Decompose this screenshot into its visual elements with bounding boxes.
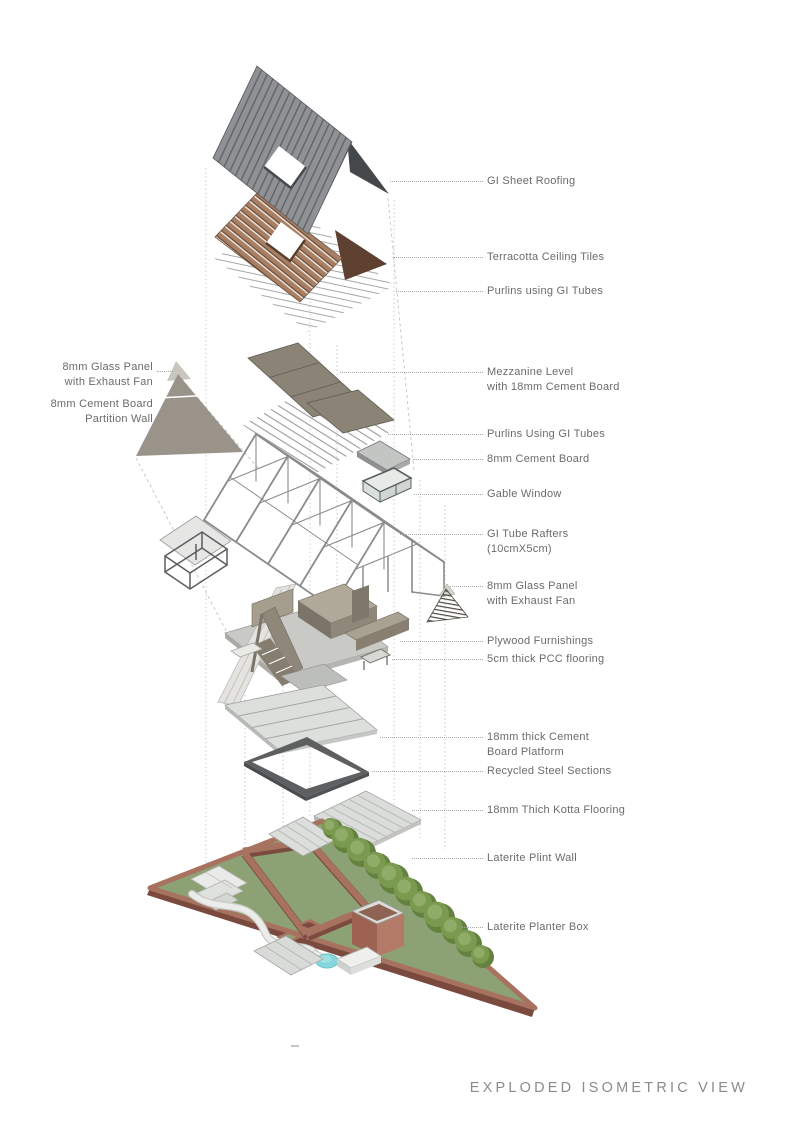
layer-glass-panel-right: [427, 584, 468, 622]
callout-glass-panel-exhaust-fan-right: 8mm Glass Panelwith Exhaust Fan: [487, 579, 578, 608]
callout-glass-panel-exhaust-fan-right-line: with Exhaust Fan: [487, 594, 578, 609]
leader-line-mezzanine-level: [340, 372, 483, 373]
callout-pcc-flooring: 5cm thick PCC flooring: [487, 652, 604, 667]
callout-laterite-plint-wall: Laterite Plint Wall: [487, 851, 577, 866]
callout-cement-board-partition-wall-line: Partition Wall: [35, 412, 153, 427]
callout-mezzanine-level-line: Mezzanine Level: [487, 365, 620, 380]
leader-line-cement-board-8mm: [413, 459, 483, 460]
callout-gi-sheet-roofing: GI Sheet Roofing: [487, 174, 575, 189]
callout-glass-panel-exhaust-fan-right-line: 8mm Glass Panel: [487, 579, 578, 594]
callout-cement-board-8mm: 8mm Cement Board: [487, 452, 589, 467]
leader-line-laterite-plint-wall: [412, 858, 483, 859]
callout-terracotta-ceiling-tiles: Terracotta Ceiling Tiles: [487, 250, 604, 265]
callout-cement-board-8mm-line: 8mm Cement Board: [487, 452, 589, 467]
callout-cement-board-platform-line: 18mm thick Cement: [487, 730, 589, 745]
callout-cement-board-partition-wall-line: 8mm Cement Board: [35, 397, 153, 412]
callout-kotta-flooring-line: 18mm Thich Kotta Flooring: [487, 803, 625, 818]
callout-cement-board-partition-wall: 8mm Cement BoardPartition Wall: [35, 397, 153, 426]
callout-cement-board-platform: 18mm thick CementBoard Platform: [487, 730, 589, 759]
callout-glass-panel-exhaust-fan-left-line: 8mm Glass Panel: [35, 360, 153, 375]
callout-gi-tube-rafters: GI Tube Rafters(10cmX5cm): [487, 527, 568, 556]
leader-line-gi-tube-rafters: [400, 534, 483, 535]
leader-line-pcc-flooring: [392, 659, 483, 660]
exploded-isometric-diagram: [0, 0, 800, 1131]
callout-purlins-using-gi-tubes-upper: Purlins using GI Tubes: [487, 284, 603, 299]
callout-purlins-using-gi-tubes-lower-line: Purlins Using GI Tubes: [487, 427, 605, 442]
callout-recycled-steel-sections: Recycled Steel Sections: [487, 764, 611, 779]
leader-line-gi-sheet-roofing: [390, 181, 483, 182]
callout-gi-tube-rafters-line: GI Tube Rafters: [487, 527, 568, 542]
callout-purlins-using-gi-tubes-upper-line: Purlins using GI Tubes: [487, 284, 603, 299]
callout-mezzanine-level: Mezzanine Levelwith 18mm Cement Board: [487, 365, 620, 394]
layer-8mm-cement-board: [357, 441, 410, 475]
layer-gi-sheet-roofing: [213, 66, 389, 234]
callout-laterite-plint-wall-line: Laterite Plint Wall: [487, 851, 577, 866]
callout-mezzanine-level-line: with 18mm Cement Board: [487, 380, 620, 395]
leader-line-terracotta-ceiling-tiles: [393, 257, 483, 258]
leader-line-kotta-flooring: [412, 810, 483, 811]
callout-gable-window-line: Gable Window: [487, 487, 562, 502]
callout-cement-board-platform-line: Board Platform: [487, 745, 589, 760]
callout-plywood-furnishings: Plywood Furnishings: [487, 634, 593, 649]
layer-gable-window-left: [160, 516, 231, 589]
leader-line-laterite-planter-box: [462, 927, 483, 928]
leader-line-gable-window: [414, 494, 483, 495]
callout-laterite-planter-box: Laterite Planter Box: [487, 920, 589, 935]
callout-terracotta-ceiling-tiles-line: Terracotta Ceiling Tiles: [487, 250, 604, 265]
leader-line-plywood-furnishings: [400, 641, 483, 642]
page: GI Sheet RoofingTerracotta Ceiling Tiles…: [0, 0, 800, 1131]
callout-purlins-using-gi-tubes-lower: Purlins Using GI Tubes: [487, 427, 605, 442]
leader-line-glass-panel-exhaust-fan-right: [450, 586, 483, 587]
callout-glass-panel-exhaust-fan-left: 8mm Glass Panelwith Exhaust Fan: [35, 360, 153, 389]
leader-line-purlins-using-gi-tubes-upper: [396, 291, 483, 292]
callout-laterite-planter-box-line: Laterite Planter Box: [487, 920, 589, 935]
callout-kotta-flooring: 18mm Thich Kotta Flooring: [487, 803, 625, 818]
layer-gable-window-right: [363, 468, 411, 502]
leader-line-glass-panel-exhaust-fan-left: [157, 371, 173, 372]
callout-gi-sheet-roofing-line: GI Sheet Roofing: [487, 174, 575, 189]
drawing-title: EXPLODED ISOMETRIC VIEW: [470, 1080, 748, 1096]
callout-glass-panel-exhaust-fan-left-line: with Exhaust Fan: [35, 375, 153, 390]
callout-pcc-flooring-line: 5cm thick PCC flooring: [487, 652, 604, 667]
callout-recycled-steel-sections-line: Recycled Steel Sections: [487, 764, 611, 779]
leader-line-purlins-using-gi-tubes-lower: [388, 434, 483, 435]
callout-gi-tube-rafters-line: (10cmX5cm): [487, 542, 568, 557]
callout-plywood-furnishings-line: Plywood Furnishings: [487, 634, 593, 649]
leader-line-recycled-steel-sections: [372, 771, 483, 772]
callout-gable-window: Gable Window: [487, 487, 562, 502]
leader-line-cement-board-platform: [380, 737, 483, 738]
